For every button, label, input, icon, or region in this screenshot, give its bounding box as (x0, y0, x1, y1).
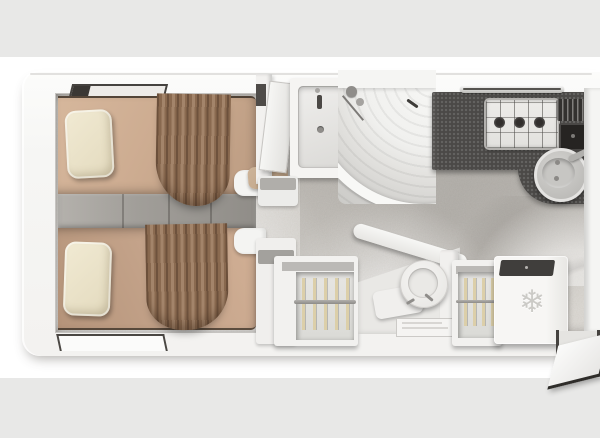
step-top (260, 178, 296, 190)
shower-mixer-icon (346, 86, 357, 97)
kitchen-light-strip (460, 85, 564, 93)
clothes-hanger (335, 278, 338, 330)
shower-knob-icon (356, 98, 364, 106)
pillow-bottom-bed (63, 241, 113, 317)
fridge-vent-dot (525, 266, 528, 269)
toilet-lid (408, 268, 438, 298)
utensil-drainer (557, 99, 585, 121)
roof-edge-highlight (30, 73, 592, 75)
recess-drain (571, 134, 575, 138)
window-bottom-wall (56, 334, 168, 351)
motorhome-floorplan-render: ❄ (0, 0, 600, 438)
basin-drain (317, 126, 324, 133)
corner-shower (338, 70, 436, 204)
tray-line (402, 322, 442, 324)
light-tube (463, 88, 561, 90)
tray-line (402, 327, 448, 329)
bathroom-step (258, 176, 298, 206)
basin-tap (315, 88, 320, 93)
snowflake-icon: ❄ (510, 280, 554, 324)
background-band-top (0, 0, 600, 57)
background-band-bottom (0, 378, 600, 438)
privacy-curtain-bottom-bed (145, 223, 229, 330)
clothes-hanger (346, 278, 349, 330)
bathroom-wall-vent (256, 84, 266, 106)
clothes-hanger (302, 278, 305, 330)
privacy-curtain-top-bed (155, 93, 231, 206)
hob-burner (494, 117, 505, 128)
hob-burner (514, 117, 525, 128)
sink-drain (554, 176, 559, 181)
basin-slot-drain (317, 95, 322, 109)
step-riser (122, 190, 124, 230)
hanging-rail (294, 300, 356, 304)
pillow-top-bed (64, 109, 114, 179)
wardrobe-left (274, 256, 358, 346)
hob-burner (534, 117, 545, 128)
tall-cabinet-right-wall (584, 88, 600, 332)
clothes-hanger (324, 278, 327, 330)
hanging-rail (456, 300, 498, 303)
sink-overflow (555, 160, 560, 165)
clothes-hanger (313, 278, 316, 330)
wardrobe-edge (282, 262, 354, 271)
